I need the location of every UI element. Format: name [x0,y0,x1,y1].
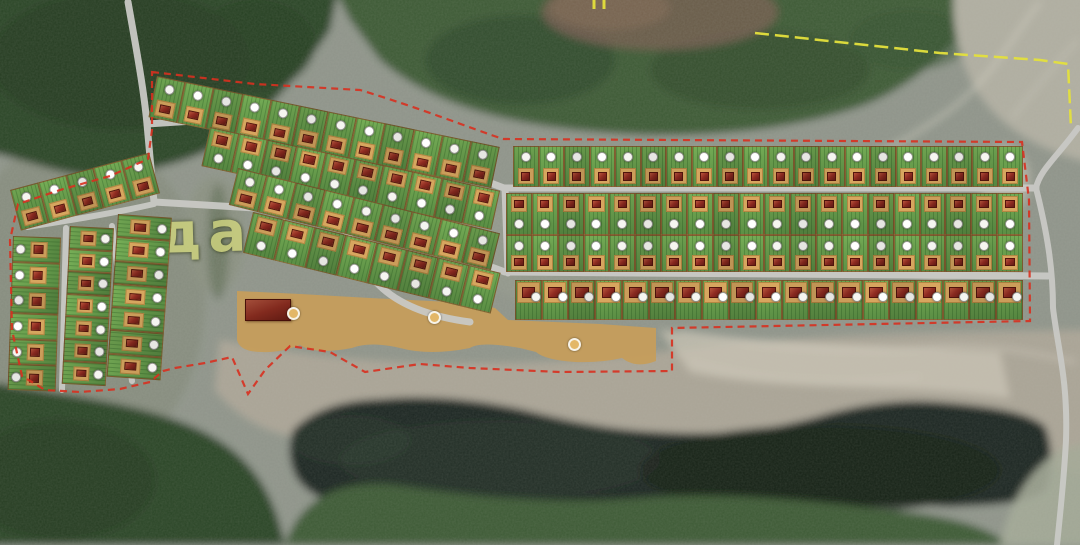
survey-yellow-line [755,33,1071,128]
boundary-overlay-layer [0,0,1080,545]
development-boundary-line [10,72,1030,394]
survey-yellow-tick [594,0,604,9]
satellite-master-plan: дач [0,0,1080,545]
